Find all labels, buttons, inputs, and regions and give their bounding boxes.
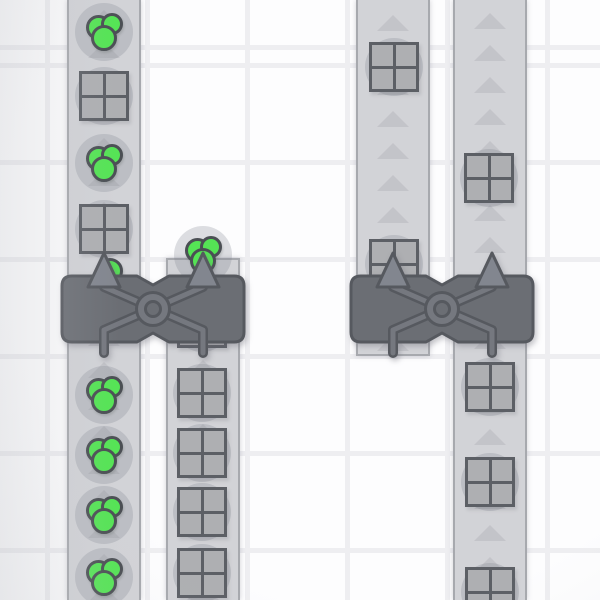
- output-arrow-icon: [187, 253, 219, 287]
- output-arrow-icon: [476, 253, 508, 287]
- output-arrow-icon: [377, 253, 409, 287]
- balancer-machine[interactable]: [58, 238, 248, 362]
- machine-layer: [0, 0, 600, 600]
- center-ring-hole: [435, 302, 450, 317]
- game-viewport: [0, 0, 600, 600]
- balancer-machine[interactable]: [347, 238, 537, 362]
- center-ring-hole: [146, 302, 161, 317]
- output-arrow-icon: [88, 253, 120, 287]
